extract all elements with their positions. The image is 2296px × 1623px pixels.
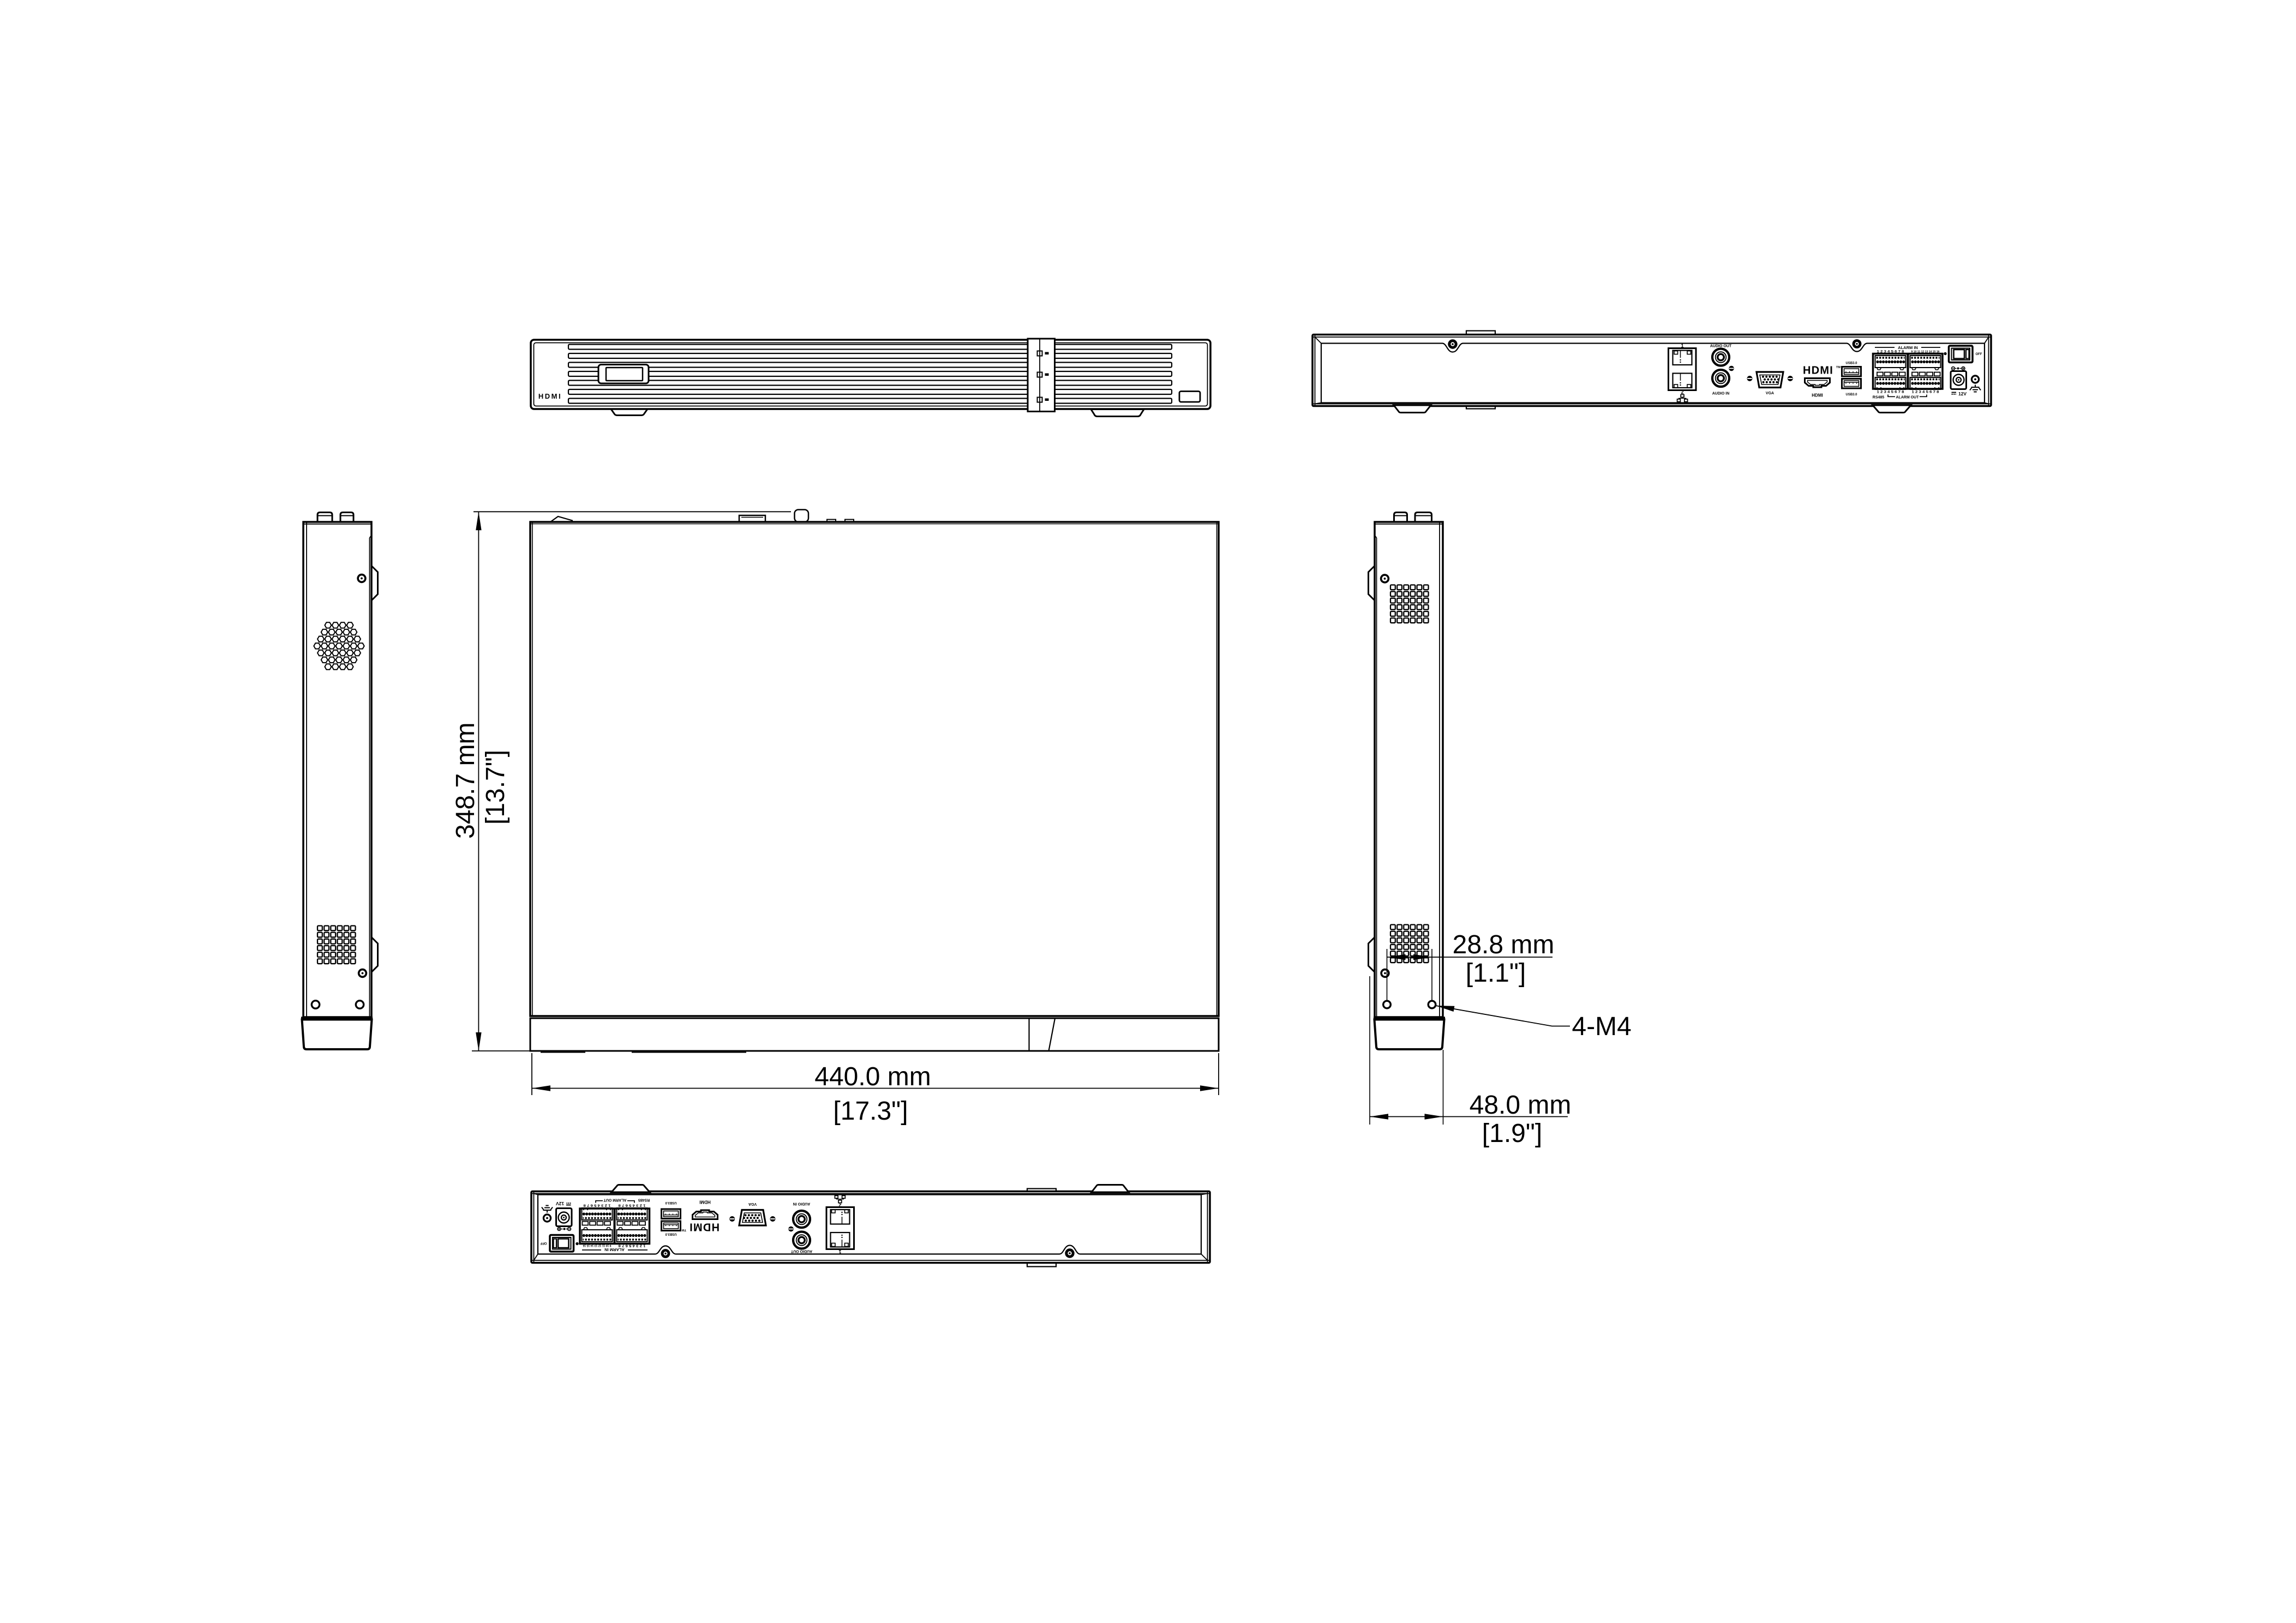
svg-text:VGA: VGA: [1766, 392, 1774, 395]
svg-text:4-M4: 4-M4: [1572, 1012, 1632, 1041]
svg-text:1: 1: [1681, 343, 1683, 348]
svg-text:[1.9"]: [1.9"]: [1482, 1119, 1542, 1148]
svg-text:[13.7"]: [13.7"]: [481, 750, 510, 825]
svg-text:440.0 mm: 440.0 mm: [814, 1062, 931, 1091]
svg-text:[17.3"]: [17.3"]: [833, 1097, 908, 1126]
svg-text:1 2 3 4 5 6 7 8: 1 2 3 4 5 6 7 8: [1912, 391, 1940, 394]
svg-text:1 2 3 4 5 6 7 8: 1 2 3 4 5 6 7 8: [1877, 351, 1905, 354]
svg-text:RS485: RS485: [1873, 396, 1885, 400]
svg-text:HDMI: HDMI: [1812, 393, 1823, 398]
svg-text:HDMI: HDMI: [1803, 365, 1833, 377]
svg-text:2: 2: [1681, 389, 1683, 395]
svg-text:HDMI: HDMI: [538, 392, 562, 400]
svg-text:OFF: OFF: [1976, 353, 1982, 356]
svg-text:348.7 mm: 348.7 mm: [451, 723, 480, 839]
svg-text:USB3.0: USB3.0: [1845, 362, 1857, 365]
svg-text:28.8 mm: 28.8 mm: [1453, 930, 1555, 959]
svg-text:ALARM OUT: ALARM OUT: [1896, 396, 1920, 400]
svg-text:ALARM IN: ALARM IN: [1898, 345, 1918, 350]
svg-text:USB3.0: USB3.0: [1845, 393, 1857, 396]
svg-text:[1.1"]: [1.1"]: [1466, 959, 1526, 988]
svg-text:9 10 11 12 13 14 15 16: 9 10 11 12 13 14 15 16: [1911, 351, 1940, 354]
svg-text:12V: 12V: [1958, 391, 1967, 396]
svg-text:TM: TM: [1836, 366, 1841, 369]
svg-text:AUDIO IN: AUDIO IN: [1712, 392, 1730, 396]
svg-text:48.0 mm: 48.0 mm: [1470, 1091, 1572, 1120]
svg-text:1 2 3 4 5 6 7 8: 1 2 3 4 5 6 7 8: [1877, 391, 1905, 394]
